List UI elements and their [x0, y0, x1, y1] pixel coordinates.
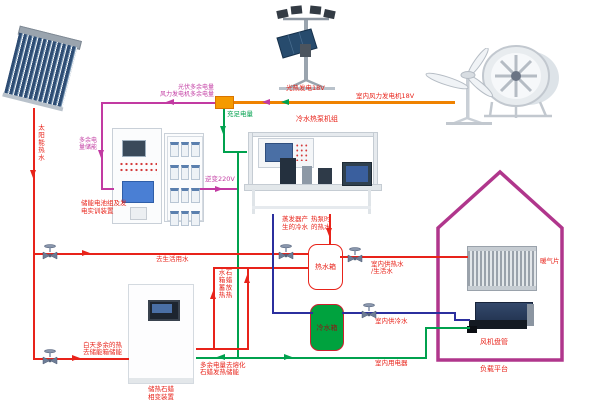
flow-arrow	[98, 150, 104, 158]
battery-shelf	[168, 141, 202, 158]
label-platform: 负载平台	[480, 366, 508, 374]
flow-arrow	[217, 354, 225, 360]
cabinet-vent	[130, 207, 147, 220]
heat-pump-bench-image	[244, 126, 380, 216]
valve-icon	[42, 244, 58, 261]
label-bench: 冷水热泵机组	[296, 116, 338, 124]
flow-arrow	[284, 354, 292, 360]
line-surplus-into-cabinet	[101, 188, 114, 190]
bench-compressor	[280, 158, 296, 184]
flow-arrow	[262, 99, 270, 105]
bench-display	[342, 162, 372, 186]
label-inverter: 逆变220V	[205, 176, 235, 184]
label-paraffin-release: 石蜡放热 水箱蓄热	[217, 269, 231, 313]
line-power-to-fancoil	[425, 327, 470, 329]
battery-shelf	[168, 210, 202, 227]
line-power-main-vertical	[237, 151, 239, 359]
label-to-domestic: 去生活用水	[156, 256, 189, 264]
energy-system-diagram: 热水箱 冷水箱	[0, 0, 600, 419]
junction-box	[215, 96, 234, 109]
line-surplus-vertical	[101, 102, 103, 190]
valve-icon	[278, 244, 294, 261]
cold-water-tank: 冷水箱	[310, 304, 344, 351]
label-day-surplus: 白天多余的热 去储能箱储能	[83, 342, 122, 356]
label-heatpump-hot: 热泵时 的热水	[311, 216, 331, 231]
label-fan-coil: 风机盘管	[480, 339, 508, 347]
label-pv-generation: 光热发电18V	[286, 85, 325, 93]
pipe-solar-down	[33, 108, 35, 360]
cabinet-screen	[122, 140, 146, 157]
label-sufficient-power: 充足电量	[227, 111, 253, 119]
label-indoor-hot: 室内供热水 /生活水	[371, 261, 404, 275]
line-surplus-horizontal	[101, 102, 217, 104]
flow-arrow	[210, 291, 216, 299]
paraffin-screen	[148, 300, 180, 321]
pv-tracker-image	[265, 4, 347, 90]
flow-arrow	[244, 275, 250, 283]
wind-turbine-image	[420, 48, 500, 126]
cold-water-tank-label: 冷水箱	[317, 323, 338, 333]
solar-collector-image	[2, 24, 86, 116]
label-surplus-storage: 多余电 量储能	[79, 137, 97, 151]
flow-arrow	[82, 250, 90, 256]
line-power-to-bench	[223, 151, 247, 153]
label-pv-surplus: 光伏多余电量 风力发电机多余电量	[128, 84, 214, 98]
label-battery-cabinet: 储能电池组及发 电实训装置	[81, 200, 127, 215]
radiator-image	[467, 246, 537, 291]
label-melt-paraffin: 多余电量去熔化 石蜡发热储能	[200, 362, 246, 376]
hot-water-tank-label: 热水箱	[315, 262, 336, 272]
label-paraffin-cabinet: 储热石蜡 相变装置	[136, 386, 186, 401]
label-indoor-appliances: 室内用电器	[375, 360, 408, 368]
bench-tank	[302, 166, 312, 184]
line-power-house-riser	[425, 327, 427, 359]
battery-shelf	[168, 164, 202, 181]
valve-icon	[347, 247, 363, 264]
label-solar-hot-water: 太阳能热水	[36, 124, 44, 172]
flow-arrow	[215, 186, 223, 192]
flow-arrow	[220, 126, 226, 134]
paraffin-cabinet-image	[128, 284, 194, 384]
pipe-paraffin-bottom	[196, 348, 249, 350]
fan-coil-image	[467, 302, 535, 336]
pipe-cold-to-fancoil	[454, 319, 470, 321]
label-wind-generation: 室内风力发电机18V	[356, 93, 414, 101]
flow-arrow	[281, 99, 289, 105]
cabinet-indicator-lights	[119, 161, 157, 175]
valve-icon	[42, 349, 58, 366]
label-indoor-cold: 室内供冷水	[375, 318, 408, 326]
pipe-chilled-down	[272, 214, 274, 314]
hot-water-tank: 热水箱	[308, 244, 343, 290]
pipe-chilled-to-tank	[272, 312, 313, 314]
battery-shelf	[168, 187, 202, 204]
pipe-paraffin-riser-1	[213, 267, 215, 350]
label-radiator: 暖气片	[540, 258, 560, 266]
pipe-cold-to-house	[342, 312, 456, 314]
flow-arrow	[72, 355, 80, 361]
bench-unit	[318, 168, 332, 184]
label-evaporator-chilled: 蒸发器产 生的冷水	[282, 216, 308, 231]
flow-arrow	[166, 99, 174, 105]
